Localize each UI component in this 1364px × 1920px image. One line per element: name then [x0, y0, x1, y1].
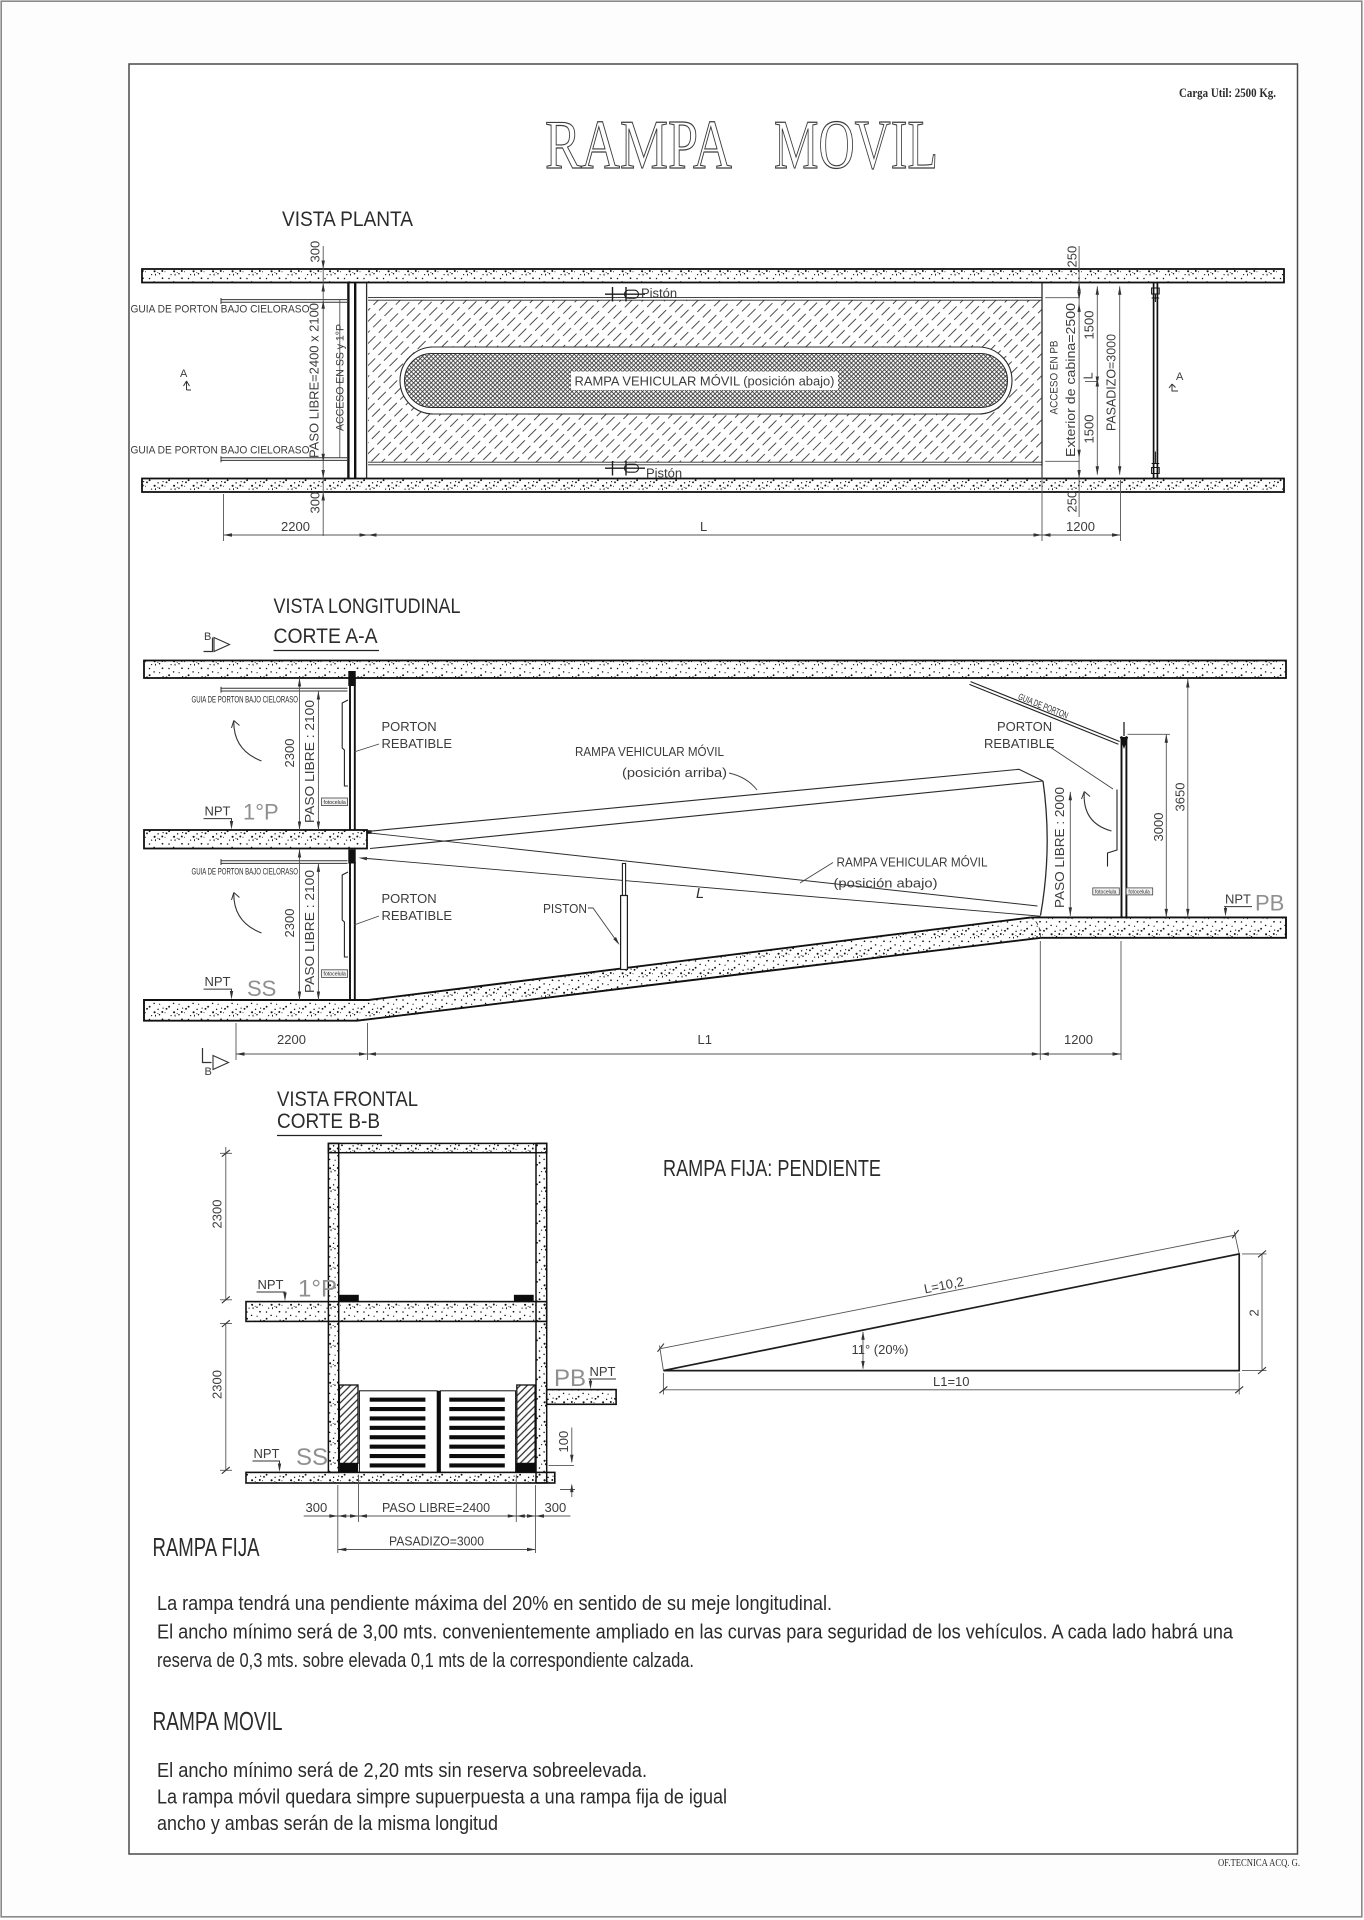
svg-text:La rampa móvil quedara simpre: La rampa móvil quedara simpre supuerpues… — [157, 1786, 727, 1809]
svg-text:NPT: NPT — [1225, 892, 1251, 907]
svg-text:1200: 1200 — [1066, 519, 1095, 534]
svg-text:GUIA DE PORTON BAJO CIELORASO: GUIA DE PORTON BAJO CIELORASO — [131, 304, 310, 316]
svg-text:VISTA FRONTAL: VISTA FRONTAL — [277, 1088, 418, 1111]
svg-text:300: 300 — [308, 492, 323, 514]
svg-text:300: 300 — [308, 241, 323, 263]
svg-text:(posición abajo): (posición abajo) — [834, 876, 938, 891]
svg-text:RAMPA MOVIL: RAMPA MOVIL — [153, 1708, 283, 1736]
svg-text:PASO LIBRE=2400 x 2100: PASO LIBRE=2400 x 2100 — [306, 303, 321, 458]
svg-text:Carga Util: 2500 Kg.: Carga Util: 2500 Kg. — [1179, 85, 1276, 100]
svg-text:PASADIZO=3000: PASADIZO=3000 — [1104, 334, 1119, 431]
svg-text:PISTON: PISTON — [543, 901, 587, 916]
svg-text:1500: 1500 — [1082, 311, 1097, 340]
svg-text:ancho y ambas serán de la mism: ancho y ambas serán de la misma longitud — [157, 1812, 498, 1835]
svg-text:El ancho mínimo será de 2,20 m: El ancho mínimo será de 2,20 mts sin res… — [157, 1759, 647, 1782]
svg-text:NPT: NPT — [205, 804, 231, 819]
svg-text:OF.TECNICA ACQ. G.: OF.TECNICA ACQ. G. — [1218, 1858, 1300, 1869]
svg-text:B: B — [205, 1066, 212, 1078]
svg-text:2200: 2200 — [281, 519, 310, 534]
svg-text:PB: PB — [554, 1365, 586, 1392]
svg-text:PORTON: PORTON — [997, 719, 1052, 734]
svg-text:VISTA PLANTA: VISTA PLANTA — [282, 208, 413, 231]
svg-text:PASO LIBRE : 2100: PASO LIBRE : 2100 — [302, 700, 317, 823]
svg-text:RAMPA FIJA: PENDIENTE: RAMPA FIJA: PENDIENTE — [663, 1155, 881, 1181]
svg-text:1500: 1500 — [1082, 415, 1097, 444]
svg-text:El ancho mínimo será de 3,00 m: El ancho mínimo será de 3,00 mts. conven… — [157, 1621, 1234, 1644]
svg-text:Pistón: Pistón — [646, 466, 682, 481]
svg-text:PASO LIBRE : 2000: PASO LIBRE : 2000 — [1052, 787, 1067, 908]
svg-text:NPT: NPT — [258, 1277, 284, 1292]
svg-text:fotocelula: fotocelula — [1128, 889, 1150, 895]
svg-text:A: A — [1176, 371, 1184, 383]
svg-text:300: 300 — [545, 1500, 567, 1515]
svg-text:fotocelula: fotocelula — [324, 800, 346, 806]
svg-text:2300: 2300 — [210, 1200, 225, 1229]
svg-text:PORTON: PORTON — [382, 891, 437, 906]
svg-text:ACCESO EN SS y 1°P: ACCESO EN SS y 1°P — [335, 324, 347, 431]
svg-text:11° (20%): 11° (20%) — [852, 1342, 909, 1357]
svg-text:2300: 2300 — [210, 1370, 225, 1399]
svg-text:L: L — [1081, 372, 1096, 379]
svg-text:1°P: 1°P — [298, 1276, 337, 1303]
svg-text:2300: 2300 — [282, 739, 297, 768]
svg-text:A: A — [180, 368, 188, 380]
svg-text:PORTON: PORTON — [382, 719, 437, 734]
svg-text:REBATIBLE: REBATIBLE — [382, 908, 453, 923]
svg-text:RAMPA VEHICULAR MÓVIL: RAMPA VEHICULAR MÓVIL — [575, 744, 724, 759]
svg-text:3000: 3000 — [1151, 813, 1166, 842]
svg-text:2: 2 — [1247, 1309, 1262, 1316]
svg-text:fotocelula: fotocelula — [1095, 889, 1117, 895]
svg-text:B: B — [204, 631, 211, 643]
svg-text:RAMPA VEHICULAR MÓVIL: RAMPA VEHICULAR MÓVIL — [837, 855, 988, 870]
svg-text:250: 250 — [1065, 246, 1080, 268]
svg-text:L: L — [696, 886, 704, 902]
svg-text:La rampa tendrá una pendiente: La rampa tendrá una pendiente máxima del… — [157, 1592, 832, 1615]
svg-text:REBATIBLE: REBATIBLE — [382, 736, 453, 751]
svg-text:250: 250 — [1065, 491, 1080, 513]
svg-text:PASO LIBRE=2400: PASO LIBRE=2400 — [382, 1500, 490, 1515]
svg-text:Exterior de cabina=2500: Exterior de cabina=2500 — [1063, 303, 1078, 457]
svg-text:NPT: NPT — [205, 974, 231, 989]
svg-text:REBATIBLE: REBATIBLE — [984, 736, 1055, 751]
svg-text:3650: 3650 — [1173, 783, 1188, 812]
svg-text:Pistón: Pistón — [641, 286, 677, 301]
svg-text:(posición arriba): (posición arriba) — [622, 765, 727, 780]
svg-text:PASO LIBRE : 2100: PASO LIBRE : 2100 — [302, 870, 317, 993]
svg-text:fotocelula: fotocelula — [324, 972, 346, 978]
svg-text:PB: PB — [1255, 891, 1284, 916]
svg-text:1°P: 1°P — [243, 800, 279, 825]
svg-text:GUIA DE PORTON BAJO CIELORASO: GUIA DE PORTON BAJO CIELORASO — [131, 445, 310, 457]
svg-text:VISTA LONGITUDINAL: VISTA LONGITUDINAL — [274, 595, 461, 618]
svg-text:2300: 2300 — [282, 909, 297, 938]
svg-text:L: L — [700, 519, 707, 534]
svg-text:RAMPA FIJA: RAMPA FIJA — [153, 1534, 260, 1562]
svg-text:NPT: NPT — [254, 1446, 280, 1461]
svg-text:GUIA DE PORTON BAJO CIELORASO: GUIA DE PORTON BAJO CIELORASO — [192, 695, 299, 705]
svg-text:reserva de 0,3 mts. sobre elev: reserva de 0,3 mts. sobre elevada 0,1 mt… — [157, 1649, 694, 1672]
svg-text:300: 300 — [306, 1500, 328, 1515]
svg-text:GUIA DE PORTON BAJO CIELORASO: GUIA DE PORTON BAJO CIELORASO — [192, 867, 299, 877]
svg-text:MOVIL: MOVIL — [774, 107, 938, 184]
svg-text:RAMPA VEHICULAR MÓVIL (posició: RAMPA VEHICULAR MÓVIL (posición abajo) — [575, 374, 835, 389]
svg-text:RAMPA: RAMPA — [545, 107, 732, 184]
svg-text:CORTE B-B: CORTE B-B — [277, 1110, 380, 1133]
svg-text:L1=10: L1=10 — [933, 1374, 970, 1389]
svg-text:SS: SS — [296, 1444, 328, 1471]
svg-text:SS: SS — [247, 976, 276, 1001]
svg-text:CORTE A-A: CORTE A-A — [274, 625, 378, 648]
svg-text:100: 100 — [556, 1431, 571, 1453]
svg-text:1200: 1200 — [1064, 1032, 1093, 1047]
svg-text:PASADIZO=3000: PASADIZO=3000 — [389, 1534, 484, 1549]
svg-text:2200: 2200 — [277, 1032, 306, 1047]
svg-text:ACCESO EN PB: ACCESO EN PB — [1049, 341, 1061, 415]
svg-text:NPT: NPT — [590, 1364, 616, 1379]
svg-text:L1: L1 — [698, 1032, 712, 1047]
